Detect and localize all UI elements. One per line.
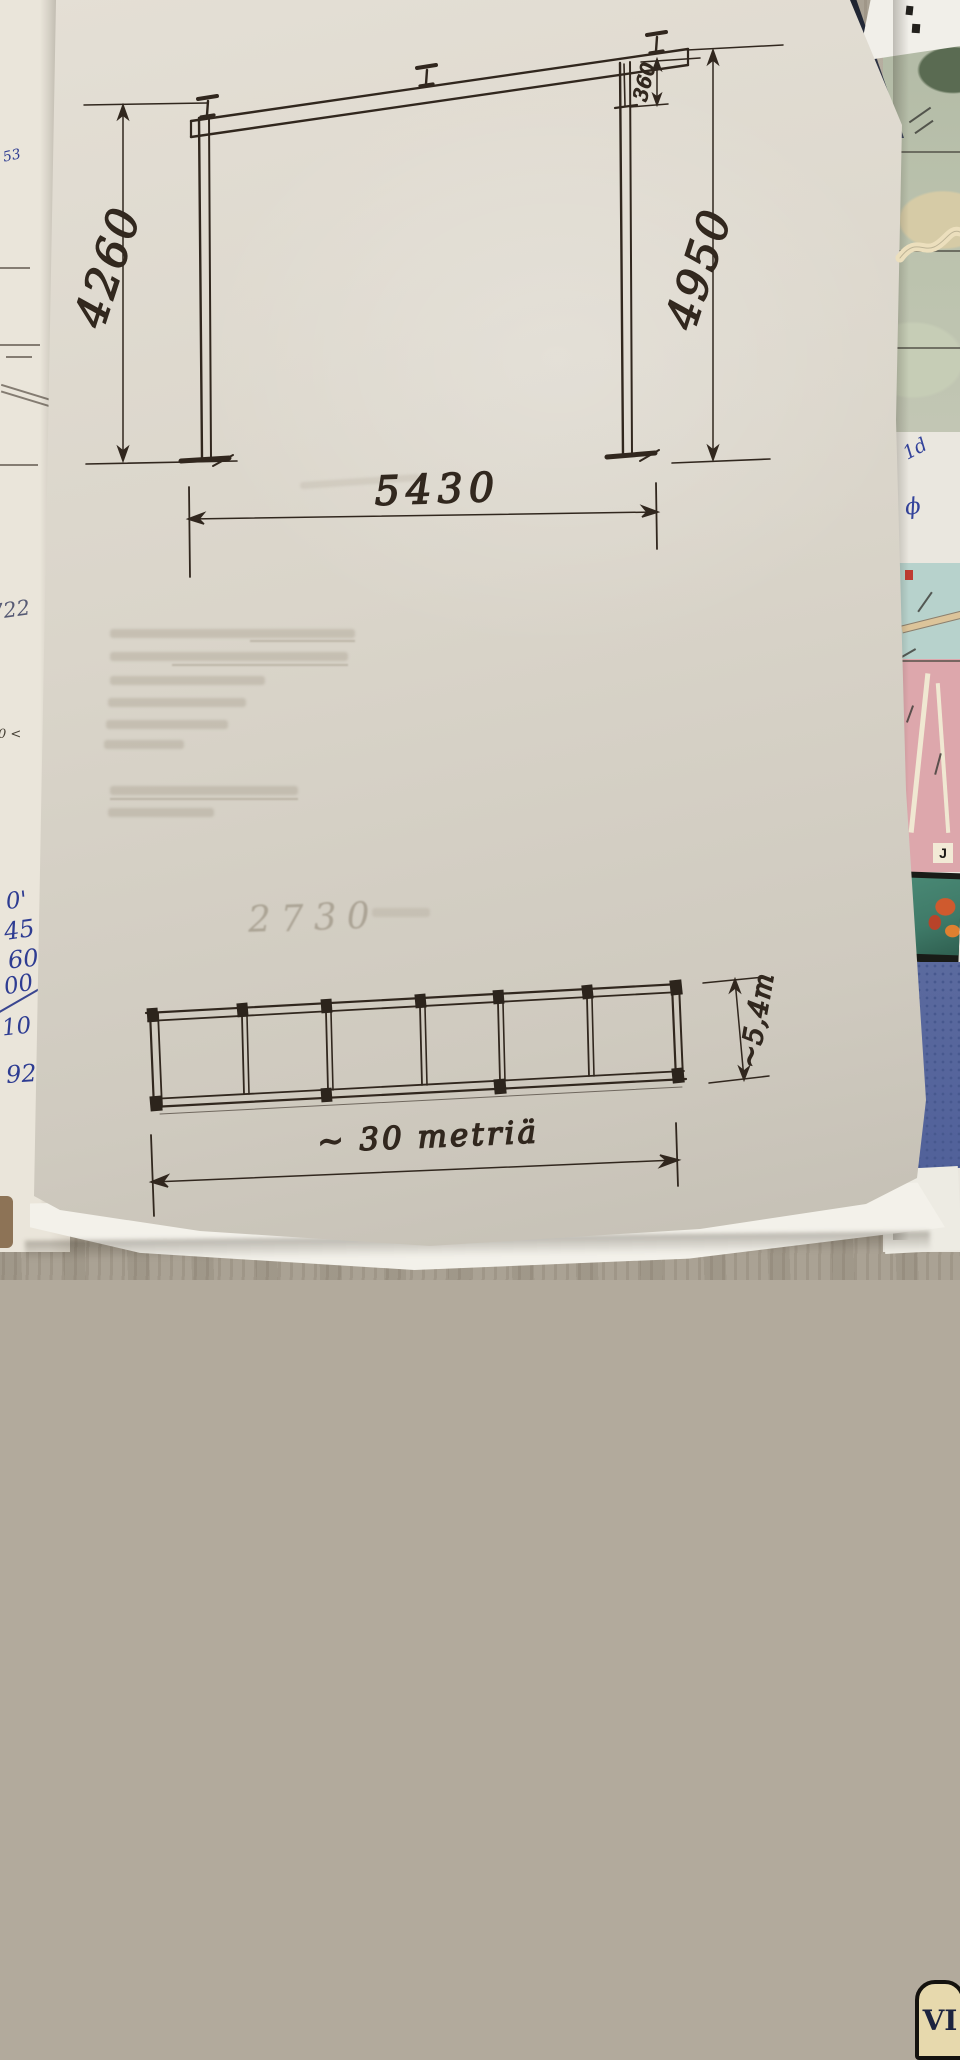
pencil-mark xyxy=(0,267,30,269)
map-label-squiggle xyxy=(914,120,933,134)
map-road xyxy=(901,611,960,634)
ghost-text-line xyxy=(110,652,348,661)
faint-pencil-number: 2730 xyxy=(247,896,380,942)
ghost-text-line xyxy=(106,720,228,729)
handwritten-number: 00 xyxy=(2,970,35,1001)
map-grid-letter: J xyxy=(933,843,953,863)
ghost-text-line xyxy=(108,698,246,707)
handwritten-note: 0 < xyxy=(0,727,21,742)
photo-of-sketch: { "elevation": { "dim_left": "4260", "di… xyxy=(0,0,960,1280)
printed-glyph-fragment xyxy=(912,24,921,34)
ghost-text-line xyxy=(300,474,420,489)
map-label-squiggle xyxy=(909,107,931,124)
handwritten-number: 92 xyxy=(5,1059,37,1089)
brochure-emblem: VI xyxy=(915,1980,960,2060)
table-edge-fragment xyxy=(0,1196,13,1248)
ghost-underline xyxy=(110,798,298,800)
street-name-squiggle xyxy=(917,592,932,613)
ghost-underline xyxy=(250,640,355,642)
ghost-text-line xyxy=(110,629,355,638)
ghost-text-line xyxy=(108,808,214,817)
map-street xyxy=(909,673,931,833)
ghost-text-line xyxy=(110,786,298,795)
pencil-mark xyxy=(0,344,40,346)
pencil-mark xyxy=(6,356,32,358)
faint-pencil-tail xyxy=(372,908,430,917)
pencil-mark xyxy=(0,464,38,466)
ghost-text-line xyxy=(110,676,265,685)
handwritten-number: 0' xyxy=(5,887,29,915)
handwritten-note: 722 xyxy=(0,595,32,624)
sketch-paper: 2730 xyxy=(0,0,960,1280)
ghost-underline xyxy=(172,664,348,666)
ghost-text-line xyxy=(104,740,184,749)
handwritten-note: 53 xyxy=(2,146,23,165)
handwritten-number: 10 xyxy=(1,1013,33,1042)
handwritten-number: 45 xyxy=(2,914,36,946)
